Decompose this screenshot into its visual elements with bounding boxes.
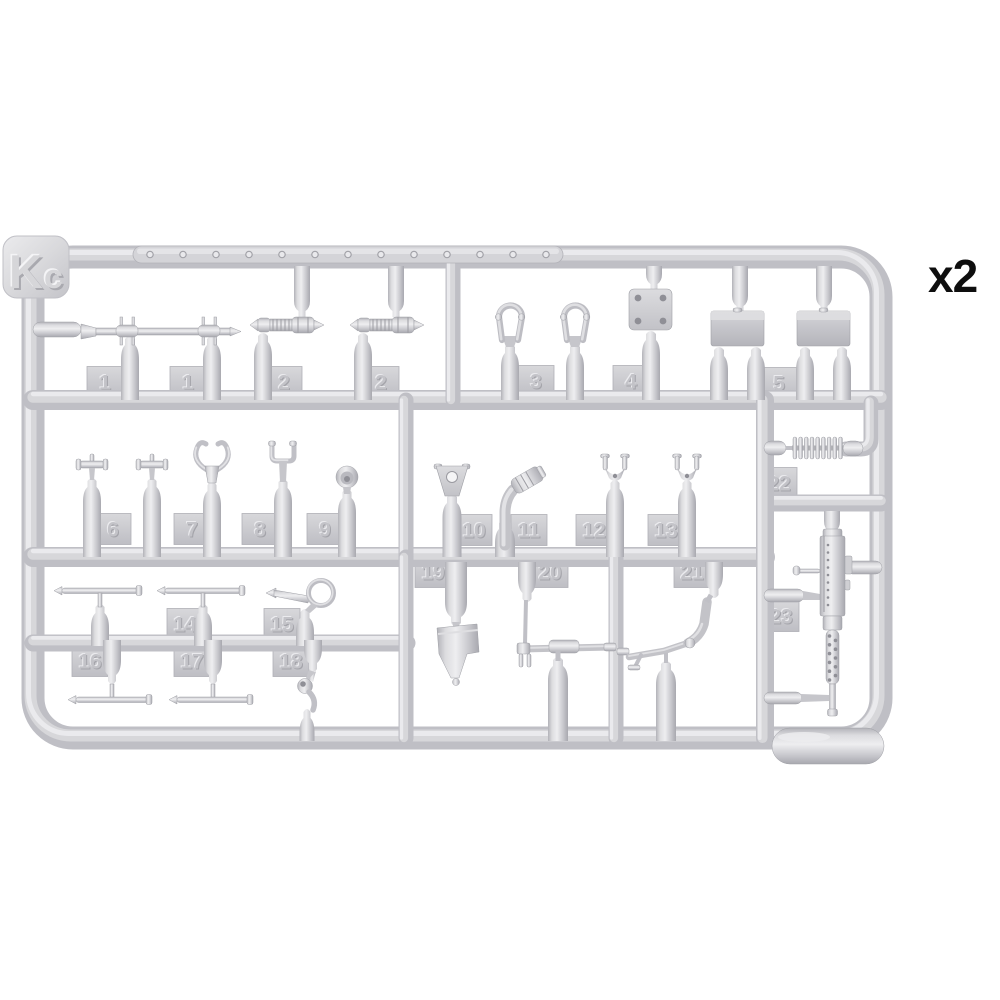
part-13 [673, 454, 702, 481]
spring-coils [793, 437, 842, 459]
part-14-rod-a [54, 586, 142, 608]
sprue-diagram: 1111112222223334445556667778889991010101… [0, 0, 1000, 1000]
part-6-a [76, 454, 108, 480]
strip-hole [378, 251, 384, 257]
runner-stub [732, 266, 748, 312]
part-20 [517, 600, 616, 667]
sprue-rail [449, 257, 454, 400]
bottle-post [833, 347, 851, 400]
bottle-post [710, 347, 728, 400]
part-10 [434, 464, 470, 496]
bottle-post [203, 336, 221, 400]
part-tab-number: 15 [270, 614, 294, 637]
bottle-post-hanging [204, 640, 222, 684]
strip-hole [312, 251, 318, 257]
sprue-letter-tag: KcKcKc [3, 236, 69, 300]
strip-hole [510, 251, 516, 257]
strip-hole [411, 251, 417, 257]
part-2-b [350, 317, 424, 333]
strip-hole [444, 251, 450, 257]
part-17 [169, 684, 253, 705]
runner-stub [816, 266, 832, 312]
part-3-a [495, 305, 524, 347]
sprue-rail [402, 557, 407, 738]
bottle-post [254, 333, 272, 400]
part-tab-number: 18 [279, 651, 303, 674]
part-tab-number: 16 [78, 651, 101, 674]
runner-stub [294, 266, 310, 317]
part-16 [68, 684, 152, 705]
bottle-post [121, 336, 139, 400]
bottle-post-hanging [103, 640, 121, 684]
quantity-label: x2 [928, 250, 977, 302]
part-2-a [250, 317, 324, 333]
bottle-post [274, 479, 292, 557]
bottle-post [443, 494, 462, 557]
part-cylinder [772, 728, 884, 764]
part-tab-11: 111111 [511, 515, 547, 546]
strip-hole [213, 251, 219, 257]
part-21 [617, 595, 711, 670]
part-tab-number: 17 [180, 651, 203, 674]
sprue-rail [402, 400, 407, 557]
strip-hole [543, 251, 549, 257]
runner-stub [388, 266, 404, 317]
part-tab-number: 7 [186, 519, 198, 542]
bottle-post [796, 347, 814, 400]
part-5-b [797, 308, 850, 346]
part-tab-number: 11 [518, 520, 541, 543]
part-tab-9: 999 [307, 514, 343, 545]
bottle-post [747, 347, 765, 400]
bottle-post [642, 331, 660, 400]
strip-hole [180, 251, 186, 257]
strip-hole [147, 251, 153, 257]
part-tab-number: 13 [654, 520, 677, 543]
bottle-post [566, 344, 584, 400]
part-tab-number: 9 [319, 519, 331, 542]
strip-hole [345, 251, 351, 257]
bottle-post [548, 657, 568, 741]
part-6-b [136, 454, 168, 480]
bottle-post [300, 709, 315, 741]
bottle-post [143, 478, 161, 557]
part-22 [764, 437, 863, 459]
part-8 [269, 441, 297, 482]
sprue-rail [760, 400, 765, 738]
part-3-b [560, 305, 589, 347]
part-5-a [711, 308, 764, 346]
bottle-post [678, 480, 696, 557]
part-tab-number: 8 [254, 519, 266, 542]
bottle-post-hanging [445, 562, 467, 626]
part-9 [336, 466, 358, 494]
bottle-post [83, 478, 101, 557]
bottle-post [606, 480, 624, 557]
bottle-post [501, 344, 519, 400]
strip-hole [279, 251, 285, 257]
part-tab-number: 6 [107, 519, 119, 542]
runner-stub [646, 266, 662, 290]
part-tab-number: 12 [582, 520, 605, 543]
part-12 [601, 454, 630, 481]
part-19 [437, 622, 479, 686]
part-tab-8: 888 [242, 514, 278, 545]
bottle-post [91, 604, 109, 646]
part-4 [629, 289, 672, 330]
bottle-post [656, 661, 676, 741]
part-7 [195, 443, 229, 483]
part-14-rod-b [157, 586, 245, 608]
bottle-post-hanging [518, 562, 536, 602]
part-tab-number: 14 [173, 614, 197, 637]
bottle-post [338, 489, 356, 557]
hinge-strip-part [133, 246, 563, 263]
part-15 [266, 580, 334, 613]
strip-hole [246, 251, 252, 257]
part-tab-number: 10 [462, 520, 485, 543]
bottle-post-hanging [705, 562, 723, 598]
bottle-post [354, 333, 372, 400]
strip-hole [477, 251, 483, 257]
sprue-rail [765, 498, 881, 503]
bottle-post [203, 482, 221, 557]
